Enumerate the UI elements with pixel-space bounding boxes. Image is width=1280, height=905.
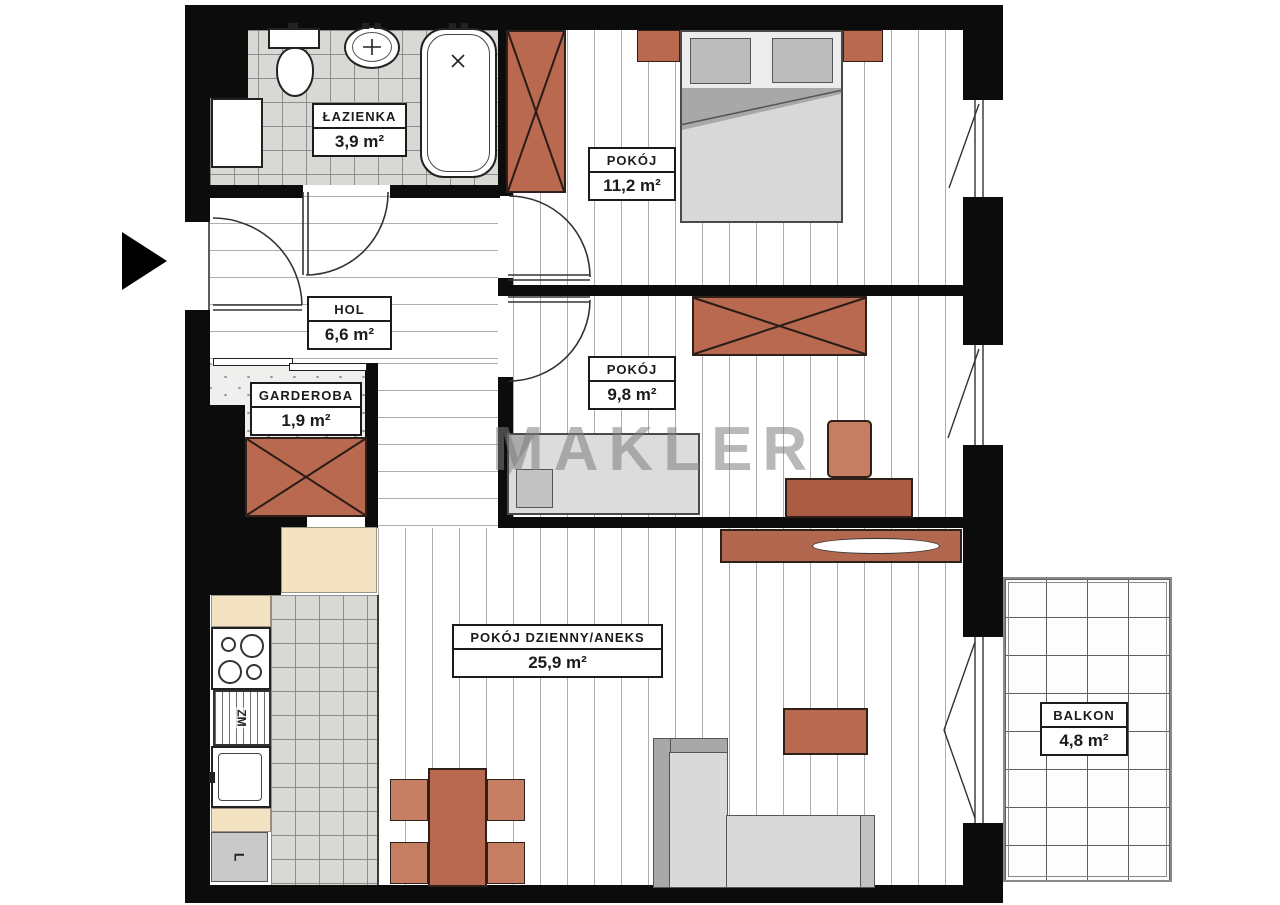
sofa-seat-vertical (669, 752, 728, 888)
burner-icon (221, 637, 236, 652)
bathtub-inner (427, 34, 490, 172)
bed-pillow (690, 38, 751, 84)
wall-right-2 (963, 197, 1003, 345)
room-name: POKÓJ (590, 149, 674, 173)
wall-left-upper (185, 30, 210, 222)
room-area: 25,9 m² (454, 650, 661, 676)
wall-top (185, 5, 1003, 30)
wall-kitchen-block (210, 528, 281, 595)
coffee-table (783, 708, 868, 755)
bathroom-sink-basin (352, 32, 392, 62)
fridge-label: L (232, 853, 248, 862)
room-label-garderoba: GARDEROBA 1,9 m² (250, 382, 362, 436)
burner-icon (218, 660, 242, 684)
kitchen-tall-cabinet (281, 527, 377, 593)
kitchen-sink-basin (218, 753, 262, 801)
dining-table (428, 768, 487, 887)
tv-cabinet (720, 529, 962, 563)
nightstand-left (637, 30, 680, 62)
wall-right-4 (963, 823, 1003, 888)
floorplan-canvas: ZM L (0, 0, 1280, 905)
sink-tap-icon (374, 23, 381, 29)
wall-right-3 (963, 445, 1003, 637)
sofa-seat-horizontal (726, 815, 862, 888)
desk-chair (827, 420, 872, 478)
garderoba-sliding-door (289, 363, 367, 371)
wall-bathroom-corner-block (210, 30, 248, 98)
room-label-bathroom: ŁAZIENKA 3,9 m² (312, 103, 407, 157)
room-area: 9,8 m² (590, 382, 674, 408)
room-area: 11,2 m² (590, 173, 674, 199)
wardrobe-x-bedroom1 (506, 30, 566, 193)
kitchen-living-boundary (377, 595, 379, 885)
wardrobe-x-bedroom2 (692, 296, 867, 356)
garderoba-sliding-door (213, 358, 293, 366)
wall-shaft-block (210, 405, 245, 517)
dining-chair (487, 842, 525, 884)
washing-machine (211, 98, 263, 168)
bed-fold (682, 88, 841, 130)
kitchen-floor (271, 595, 378, 885)
bed-pillow (772, 38, 833, 83)
room-label-hall: HOL 6,6 m² (307, 296, 392, 350)
room-name: ŁAZIENKA (314, 105, 405, 129)
sink-tap-icon (362, 23, 369, 29)
room-label-living: POKÓJ DZIENNY/ANEKS 25,9 m² (452, 624, 663, 678)
room-name: GARDEROBA (252, 384, 360, 408)
room-label-balcony: BALKON 4,8 m² (1040, 702, 1128, 756)
wall-bottom (185, 885, 1003, 903)
room-name: POKÓJ DZIENNY/ANEKS (454, 626, 661, 650)
kitchen-sink-unit (211, 746, 271, 808)
toilet-tank (268, 28, 320, 49)
kitchen-counter-top (211, 595, 271, 627)
wall-left-lower (185, 310, 210, 888)
room-label-bedroom2: POKÓJ 9,8 m² (588, 356, 676, 410)
dishwasher: ZM (213, 690, 271, 746)
tv-screen (812, 538, 940, 554)
dining-chair (390, 779, 428, 821)
wall-bathroom-south-east (390, 185, 500, 198)
stove (211, 627, 271, 690)
room-label-bedroom1: POKÓJ 11,2 m² (588, 147, 676, 201)
burner-icon (246, 664, 262, 680)
dishwasher-label: ZM (235, 707, 249, 728)
burner-icon (240, 634, 264, 658)
wall-right-1 (963, 5, 1003, 100)
kitchen-counter-bottom (211, 808, 271, 832)
toilet-button-icon (288, 23, 298, 28)
room-area: 6,6 m² (309, 322, 390, 348)
room-name: HOL (309, 298, 390, 322)
room-area: 3,9 m² (314, 129, 405, 155)
nightstand-right (843, 30, 883, 62)
wall-bedroom-divider (498, 285, 963, 296)
room-name: POKÓJ (590, 358, 674, 382)
room-area: 4,8 m² (1042, 728, 1126, 754)
room-name: BALKON (1042, 704, 1126, 728)
tub-tap-icon (461, 23, 468, 29)
watermark: MAKLER (492, 414, 817, 485)
fridge: L (211, 832, 268, 882)
wall-bathroom-south-west (210, 185, 303, 198)
tub-tap-icon (449, 23, 456, 29)
dining-chair (487, 779, 525, 821)
toilet-bowl (276, 47, 314, 97)
room-area: 1,9 m² (252, 408, 360, 434)
hall-corridor-floor (378, 363, 498, 528)
sink-handle-icon (209, 772, 215, 783)
wardrobe-x-garderoba (245, 437, 367, 517)
wall-bedroom2-living (498, 517, 963, 528)
dining-chair (390, 842, 428, 884)
sofa-armrest (860, 815, 875, 888)
entrance-arrow-icon (122, 232, 167, 290)
